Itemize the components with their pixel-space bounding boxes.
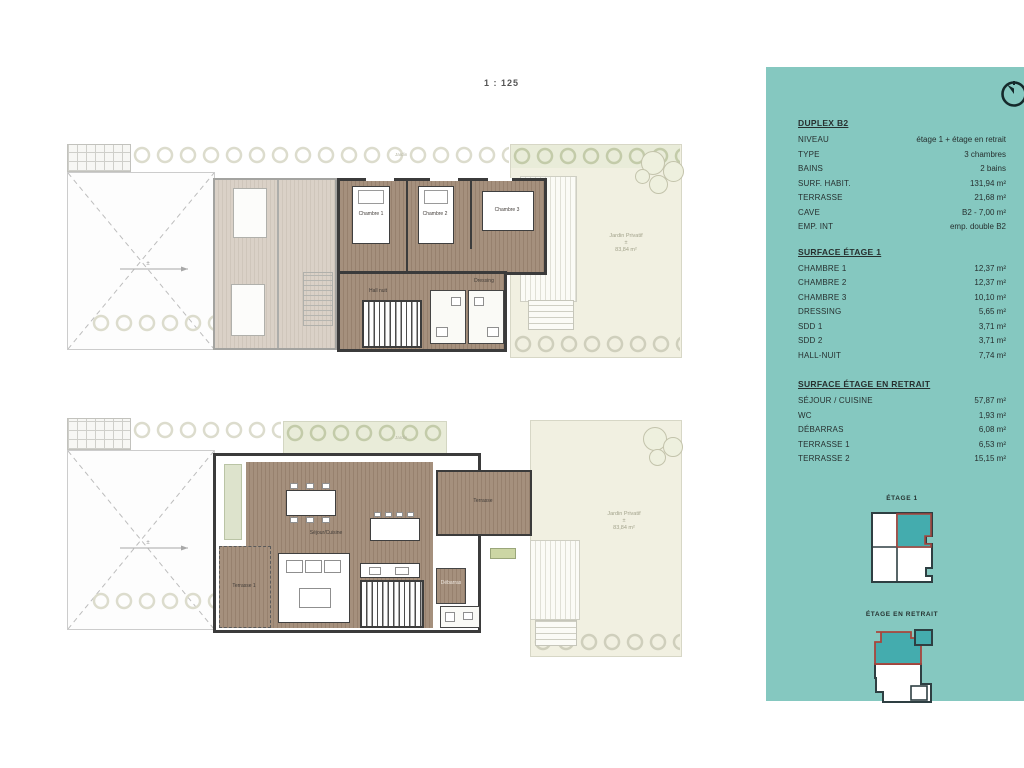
info-label: TERRASSE (798, 191, 843, 206)
surface-label: CHAMBRE 1 (798, 262, 846, 277)
page: { "scale_label": "1 : 125", "panel": { "… (0, 0, 1024, 768)
surface-section-retrait: SURFACE ÉTAGE EN RETRAIT SÉJOUR / CUISIN… (798, 379, 1006, 467)
toilet (436, 327, 448, 337)
info-row: EMP. INT emp. double B2 (798, 220, 1006, 235)
surface-label: TERRASSE 1 (798, 438, 850, 453)
surface-value: 6,08 m² (979, 423, 1006, 438)
surface-list: SÉJOUR / CUISINE 57,87 m² WC 1,93 m² DÉB… (798, 394, 1006, 467)
garden-steps (535, 620, 577, 646)
hedge-row (512, 333, 680, 356)
jardin-label: Jardin (395, 435, 407, 440)
stool (407, 512, 414, 517)
unit-b2-service-block: Hall nuit Dressing (337, 271, 507, 352)
room-label-terrasse2: Terrasse (460, 498, 506, 504)
dining-table (286, 490, 336, 516)
sofa-cushion (324, 560, 341, 573)
surface-value: 57,87 m² (974, 394, 1006, 409)
tree-icon (649, 175, 668, 194)
surface-row: CHAMBRE 3 10,10 m² (798, 291, 1006, 306)
unit-info-list: NIVEAU étage 1 + étage en retrait TYPE 3… (798, 133, 1006, 235)
surface-value: 12,37 m² (974, 262, 1006, 277)
plan-scale-label: 1 : 125 (484, 78, 519, 88)
sink (463, 612, 473, 620)
chair (290, 483, 298, 489)
surface-value: 1,93 m² (979, 409, 1006, 424)
info-label: BAINS (798, 162, 823, 177)
surface-label: TERRASSE 2 (798, 452, 850, 467)
key-plans: ÉTAGE 1 ÉTAGE EN RETRAIT (798, 495, 1006, 708)
surface-list: CHAMBRE 1 12,37 m² CHAMBRE 2 12,37 m² CH… (798, 262, 1006, 364)
section-title: SURFACE ÉTAGE EN RETRAIT (798, 379, 1006, 389)
wc-room (440, 606, 480, 628)
info-value: 2 bains (980, 162, 1006, 177)
sink (474, 297, 484, 306)
planter (224, 464, 242, 540)
surface-row: WC 1,93 m² (798, 409, 1006, 424)
surface-value: 7,74 m² (979, 349, 1006, 364)
info-row: CAVE B2 - 7,00 m² (798, 206, 1006, 221)
info-value: B2 - 7,00 m² (962, 206, 1006, 221)
surface-row: CHAMBRE 1 12,37 m² (798, 262, 1006, 277)
chair (306, 517, 314, 523)
room-label-chambre1: Chambre 1 (348, 211, 394, 217)
info-value: emp. double B2 (950, 220, 1006, 235)
info-row: BAINS 2 bains (798, 162, 1006, 177)
surface-value: 10,10 m² (974, 291, 1006, 306)
pillow (358, 190, 383, 204)
room-label-chambre2: Chambre 2 (412, 211, 458, 217)
info-label: NIVEAU (798, 133, 829, 148)
chair (306, 483, 314, 489)
room-label-terrasse1: Terrasse 1 (221, 583, 267, 589)
garage-grid (67, 144, 131, 172)
interior-wall (406, 181, 408, 272)
stool (385, 512, 392, 517)
chair (322, 483, 330, 489)
garden-steps (528, 300, 574, 330)
garden-label: Jardin Privatif ± 83,84 m² (571, 233, 681, 254)
terrasse-1: Terrasse 1 (219, 546, 271, 628)
sofa-group (278, 553, 350, 623)
kitchen-island (370, 518, 420, 541)
bathroom-sdd1 (430, 290, 466, 344)
hedge-row (131, 419, 281, 449)
kitchen-counter (360, 563, 420, 578)
surface-value: 3,71 m² (979, 334, 1006, 349)
bed (233, 188, 267, 238)
room-label-hall: Hall nuit (358, 288, 398, 294)
toilet (445, 612, 455, 622)
room-label-sejour: Séjour/Cuisine (296, 530, 356, 536)
debarras-room (436, 568, 466, 604)
surface-label: HALL-NUIT (798, 349, 841, 364)
sofa-cushion (286, 560, 303, 573)
compass-icon (1000, 79, 1024, 109)
surface-label: DRESSING (798, 305, 841, 320)
room-label-debarras: Débarras (430, 580, 472, 586)
info-value: 131,94 m² (970, 177, 1006, 192)
key-plan-label: ÉTAGE EN RETRAIT (798, 611, 1006, 618)
surface-label: DÉBARRAS (798, 423, 844, 438)
jardin-label: Jardin (395, 152, 407, 157)
key-plan-etage1: ÉTAGE 1 (798, 495, 1006, 585)
garden-label: Jardin Privatif ± 83,84 m² (569, 511, 679, 532)
stairs (362, 300, 422, 348)
info-value: 21,68 m² (974, 191, 1006, 206)
key-plan-figure-retrait (867, 626, 937, 708)
window (430, 178, 458, 181)
tree-icon (649, 449, 666, 466)
hedge-row (283, 421, 447, 455)
tree-icon (663, 437, 683, 457)
surface-row: HALL-NUIT 7,74 m² (798, 349, 1006, 364)
unit-title: DUPLEX B2 (798, 118, 1006, 128)
key-plan-retrait: ÉTAGE EN RETRAIT (798, 611, 1006, 708)
stool (374, 512, 381, 517)
surface-row: CHAMBRE 2 12,37 m² (798, 276, 1006, 291)
unit-b2-bedroom-block: Chambre 1 Chambre 2 Chambre 3 (337, 178, 547, 275)
info-row: TYPE 3 chambres (798, 148, 1006, 163)
interior-wall (470, 181, 472, 249)
toilet (487, 327, 499, 337)
unit-b2-living-block: Terrasse 1 Séjour/Cuisine (213, 453, 481, 633)
surface-value: 3,71 m² (979, 320, 1006, 335)
sofa-cushion (305, 560, 322, 573)
surface-label: SDD 2 (798, 334, 823, 349)
surface-row: DÉBARRAS 6,08 m² (798, 423, 1006, 438)
note-chip (490, 548, 516, 559)
surface-label: WC (798, 409, 812, 424)
hedge-row (131, 144, 509, 172)
floorplan-etage-en-retrait: Jardin Jardin Privatif ± 83,84 m² ± Terr… (65, 415, 681, 660)
key-plan-label: ÉTAGE 1 (798, 495, 1006, 502)
surface-value: 5,65 m² (979, 305, 1006, 320)
coffee-table (299, 588, 331, 608)
stairs (360, 580, 424, 628)
interior-wall (277, 180, 279, 348)
surface-row: TERRASSE 1 6,53 m² (798, 438, 1006, 453)
sink (451, 297, 461, 306)
info-label: SURF. HABIT. (798, 177, 851, 192)
surface-label: CHAMBRE 3 (798, 291, 846, 306)
surface-row: SÉJOUR / CUISINE 57,87 m² (798, 394, 1006, 409)
info-row: TERRASSE 21,68 m² (798, 191, 1006, 206)
window (366, 178, 394, 181)
floorplan-etage-1: Jardin Privatif ± 83,84 m² Jardin ± (65, 140, 681, 358)
bathroom-sdd2 (468, 290, 504, 344)
pillow (424, 190, 448, 204)
terrace-decking (530, 540, 580, 620)
surface-row: DRESSING 5,65 m² (798, 305, 1006, 320)
surface-value: 15,15 m² (974, 452, 1006, 467)
surface-row: SDD 1 3,71 m² (798, 320, 1006, 335)
info-row: NIVEAU étage 1 + étage en retrait (798, 133, 1006, 148)
surface-label: SDD 1 (798, 320, 823, 335)
terrasse-2: Terrasse (436, 470, 532, 536)
garage-grid (67, 418, 131, 450)
hob (395, 567, 409, 575)
tree-icon (635, 169, 650, 184)
surface-label: SÉJOUR / CUISINE (798, 394, 873, 409)
neighbour-unit (213, 178, 337, 350)
info-value: 3 chambres (964, 148, 1006, 163)
info-label: EMP. INT (798, 220, 833, 235)
key-plan-figure-etage1 (868, 510, 936, 585)
info-label: CAVE (798, 206, 820, 221)
stairs (303, 272, 333, 326)
surface-label: CHAMBRE 2 (798, 276, 846, 291)
info-panel: DUPLEX B2 NIVEAU étage 1 + étage en retr… (766, 67, 1024, 701)
room-label-dressing: Dressing (464, 278, 504, 284)
info-label: TYPE (798, 148, 820, 163)
surface-row: SDD 2 3,71 m² (798, 334, 1006, 349)
surface-row: TERRASSE 2 15,15 m² (798, 452, 1006, 467)
dim-note: ± (146, 261, 150, 267)
bed (231, 284, 265, 336)
info-row: SURF. HABIT. 131,94 m² (798, 177, 1006, 192)
surface-value: 6,53 m² (979, 438, 1006, 453)
surface-section-etage1: SURFACE ÉTAGE 1 CHAMBRE 1 12,37 m² CHAMB… (798, 247, 1006, 364)
dim-note: ± (146, 540, 150, 546)
window (488, 178, 512, 181)
stool (396, 512, 403, 517)
sink (369, 567, 381, 575)
section-title: SURFACE ÉTAGE 1 (798, 247, 1006, 257)
chair (322, 517, 330, 523)
surface-value: 12,37 m² (974, 276, 1006, 291)
chair (290, 517, 298, 523)
room-label-chambre3: Chambre 3 (482, 207, 532, 213)
info-value: étage 1 + étage en retrait (916, 133, 1006, 148)
